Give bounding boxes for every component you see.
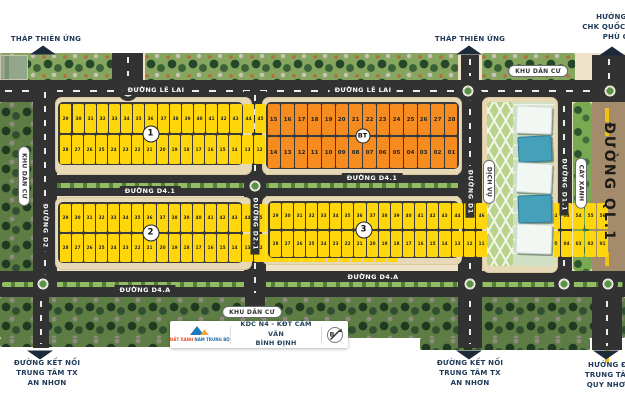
road-label-d11: ĐƯỜNG D1.1 <box>560 155 569 216</box>
compass-north-letter: B <box>330 330 335 338</box>
lot-2-24[interactable]: 24 <box>108 234 119 262</box>
lot-2-20[interactable]: 20 <box>157 234 168 262</box>
road-label-d21: ĐƯỜNG D2.1 <box>251 194 260 255</box>
lot-2-37[interactable]: 37 <box>157 204 168 232</box>
lot-3-13[interactable]: 13 <box>452 231 463 257</box>
lot-BT-20[interactable]: 20 <box>336 104 349 135</box>
lot-BT-02[interactable]: 02 <box>431 137 444 168</box>
project-title-line1: KDC N4 - KĐT CẨM VĂN <box>235 320 317 340</box>
road-centerline <box>40 301 42 344</box>
lot-3-22[interactable]: 22 <box>342 231 353 257</box>
road-label-d2: ĐƯỜNG D2 <box>41 200 50 252</box>
lot-3-26[interactable]: 26 <box>294 231 305 257</box>
lot-1-38[interactable]: 38 <box>170 104 181 133</box>
lot-1-45[interactable]: 45 <box>255 104 266 133</box>
roundabout <box>33 274 53 294</box>
master-plan-map: 2930313233343536373839404142434445464748… <box>0 0 625 420</box>
lot-1-30[interactable]: 30 <box>73 104 84 133</box>
building <box>515 162 553 194</box>
lot-3-34[interactable]: 34 <box>330 203 341 229</box>
trees-south-right-patch <box>420 338 590 350</box>
lot-1-32[interactable]: 32 <box>97 104 108 133</box>
block-badge: BT <box>355 128 370 143</box>
trees-north-2 <box>145 53 458 81</box>
block-badge: 3 <box>355 221 372 238</box>
lot-3-18[interactable]: 18 <box>391 231 402 257</box>
lot-2-35[interactable]: 35 <box>132 204 143 232</box>
area-pill-khu-dan-cu-south: KHU DÂN CƯ <box>222 306 282 318</box>
lot-2-30[interactable]: 30 <box>72 204 83 232</box>
lot-BT-14[interactable]: 14 <box>268 137 281 168</box>
roundabout <box>600 81 620 101</box>
lot-3-14[interactable]: 14 <box>439 231 450 257</box>
lot-BT-10[interactable]: 10 <box>322 137 335 168</box>
direction-line: HƯỚNG ĐI <box>552 12 625 22</box>
lot-1-41[interactable]: 41 <box>206 104 217 133</box>
road-label-le-lai-east: ĐƯỜNG LÊ LAI <box>330 85 397 95</box>
block-3: 2930313233343536373839404142434445464748… <box>268 201 459 258</box>
lot-BT-05[interactable]: 05 <box>390 137 403 168</box>
lot-BT-15[interactable]: 15 <box>268 104 281 135</box>
road-label-d4a-west: ĐƯỜNG D4.A <box>114 285 175 295</box>
divider <box>321 326 322 344</box>
lot-1-17[interactable]: 17 <box>193 135 204 164</box>
lot-3-39[interactable]: 39 <box>391 203 402 229</box>
lot-3-33[interactable]: 33 <box>318 203 329 229</box>
lot-1-43[interactable]: 43 <box>230 104 241 133</box>
lot-1-26[interactable]: 26 <box>84 135 95 164</box>
lot-1-25[interactable]: 25 <box>96 135 107 164</box>
lot-3-44[interactable]: 44 <box>452 203 463 229</box>
lot-3-55[interactable]: 55 <box>585 203 596 229</box>
block-bt: 1516171819202122232425262728 14131211100… <box>266 102 459 169</box>
lot-3-35[interactable]: 35 <box>342 203 353 229</box>
block-2: 2930313233343536373839404142434445464748… <box>58 202 243 263</box>
lot-2-14[interactable]: 14 <box>229 234 240 262</box>
lot-1-23[interactable]: 23 <box>120 135 131 164</box>
developer-logo-text: ĐẤT XANH NAM TRUNG BỘ <box>170 337 230 342</box>
lot-3-38[interactable]: 38 <box>379 203 390 229</box>
direction-line: ĐƯỜNG KẾT NỐI <box>437 358 503 368</box>
logo-text-2: NAM TRUNG BỘ <box>195 337 230 342</box>
area-pill-cay-xanh: CÂY XANH <box>575 158 587 209</box>
lot-3-25[interactable]: 25 <box>306 231 317 257</box>
road-d4a <box>0 271 625 297</box>
roundabout <box>554 274 574 294</box>
block-badge: 1 <box>142 125 159 142</box>
lot-3-31[interactable]: 31 <box>294 203 305 229</box>
lot-BT-19[interactable]: 19 <box>322 104 335 135</box>
building <box>518 194 553 223</box>
lot-3-30[interactable]: 30 <box>282 203 293 229</box>
direction-an-nhon-west: ĐƯỜNG KẾT NỐI TRUNG TÂM TX AN NHƠN <box>14 358 80 388</box>
road-d1-stub-north <box>461 55 479 80</box>
direction-quy-nhon: HƯỚNG ĐI TRUNG TÂM QUY NHƠN <box>566 360 625 390</box>
block-1: 2930313233343536373839404142434445464748… <box>58 102 243 165</box>
road-centerline <box>5 90 620 92</box>
lot-1-29[interactable]: 29 <box>60 104 71 133</box>
lot-BT-26[interactable]: 26 <box>418 104 431 135</box>
lot-2-22[interactable]: 22 <box>132 234 143 262</box>
project-title-line2: BÌNH ĐỊNH <box>235 339 317 349</box>
road-label-d4a-east: ĐƯỜNG D4.A <box>342 272 403 282</box>
lot-2-41[interactable]: 41 <box>205 204 216 232</box>
lot-1-39[interactable]: 39 <box>182 104 193 133</box>
road-centerline <box>469 59 471 76</box>
lot-3-17[interactable]: 17 <box>403 231 414 257</box>
divider <box>230 326 231 344</box>
lot-3-04[interactable]: 04 <box>561 231 572 257</box>
lot-BT-11[interactable]: 11 <box>308 137 321 168</box>
lot-1-33[interactable]: 33 <box>109 104 120 133</box>
lot-1-37[interactable]: 37 <box>158 104 169 133</box>
lot-1-44[interactable]: 44 <box>243 104 254 133</box>
lot-3-28[interactable]: 28 <box>270 231 281 257</box>
road-median <box>2 282 623 287</box>
lot-2-27[interactable]: 27 <box>72 234 83 262</box>
lot-BT-28[interactable]: 28 <box>445 104 458 135</box>
lot-BT-09[interactable]: 09 <box>336 137 349 168</box>
lot-2-32[interactable]: 32 <box>96 204 107 232</box>
lot-BT-01[interactable]: 01 <box>445 137 458 168</box>
lot-3-12[interactable]: 12 <box>464 231 475 257</box>
lot-BT-16[interactable]: 16 <box>281 104 294 135</box>
direction-line: CHK QUỐC TẾ <box>552 22 625 32</box>
direction-line: HƯỚNG ĐI <box>566 360 625 370</box>
lot-3-43[interactable]: 43 <box>439 203 450 229</box>
road-d2 <box>33 88 57 297</box>
lot-3-29[interactable]: 29 <box>270 203 281 229</box>
roundabout <box>598 274 618 294</box>
lot-1-34[interactable]: 34 <box>121 104 132 133</box>
lot-1-14[interactable]: 14 <box>229 135 240 164</box>
area-pill-khu-dan-cu-north: KHU DÂN CƯ <box>508 65 568 77</box>
lot-2-19[interactable]: 19 <box>169 234 180 262</box>
road-centerline <box>44 92 46 293</box>
direction-airport: HƯỚNG ĐI CHK QUỐC TẾ PHÙ CÁT <box>552 12 625 42</box>
lot-1-22[interactable]: 22 <box>132 135 143 164</box>
lot-BT-13[interactable]: 13 <box>281 137 294 168</box>
lot-2-33[interactable]: 33 <box>108 204 119 232</box>
lot-2-39[interactable]: 39 <box>181 204 192 232</box>
lot-2-28[interactable]: 28 <box>60 234 71 262</box>
lot-1-31[interactable]: 31 <box>85 104 96 133</box>
road-centerline <box>469 301 471 344</box>
lot-1-15[interactable]: 15 <box>217 135 228 164</box>
direction-line: ĐƯỜNG KẾT NỐI <box>14 358 80 368</box>
lot-2-25[interactable]: 25 <box>96 234 107 262</box>
lot-BT-18[interactable]: 18 <box>308 104 321 135</box>
roundabout <box>458 81 478 101</box>
road-label-ql1: ĐƯỜNG QL.1 <box>601 122 617 242</box>
lot-3-46[interactable]: 46 <box>476 203 487 229</box>
direction-an-nhon-east: ĐƯỜNG KẾT NỐI TRUNG TÂM TX AN NHƠN <box>437 358 503 388</box>
road-label-d41-west: ĐƯỜNG D4.1 <box>120 186 181 196</box>
direction-thap-thien-ung-mid: THÁP THIÊN ỨNG <box>435 34 505 44</box>
lot-1-28[interactable]: 28 <box>60 135 71 164</box>
lot-BT-25[interactable]: 25 <box>404 104 417 135</box>
road-label-le-lai-west: ĐƯỜNG LÊ LAI <box>123 85 190 95</box>
lot-1-13[interactable]: 13 <box>242 135 253 164</box>
lot-BT-24[interactable]: 24 <box>390 104 403 135</box>
lot-2-15[interactable]: 15 <box>217 234 228 262</box>
lot-3-03[interactable]: 03 <box>573 231 584 257</box>
lot-1-20[interactable]: 20 <box>157 135 168 164</box>
lot-BT-12[interactable]: 12 <box>295 137 308 168</box>
building <box>516 105 553 134</box>
developer-logo: ĐẤT XANH NAM TRUNG BỘ <box>174 326 226 344</box>
road-ql1-south <box>592 297 622 350</box>
direction-thap-thien-ung-west: THÁP THIÊN ỨNG <box>11 34 81 44</box>
road-stub-north-west <box>112 53 143 80</box>
lot-1-18[interactable]: 18 <box>181 135 192 164</box>
road-centerline <box>606 301 608 346</box>
area-pill-khu-dan-cu-west: KHU DÂN CƯ <box>18 146 30 206</box>
direction-line: TRUNG TÂM TX <box>14 368 80 378</box>
lot-1-19[interactable]: 19 <box>169 135 180 164</box>
arrow-up-icon <box>30 46 56 55</box>
lot-BT-04[interactable]: 04 <box>404 137 417 168</box>
arrow-up-icon <box>599 47 625 56</box>
lot-3-11[interactable]: 11 <box>476 231 487 257</box>
road-d1-south <box>458 297 482 348</box>
lot-1-40[interactable]: 40 <box>194 104 205 133</box>
lot-3-42[interactable]: 42 <box>427 203 438 229</box>
lot-3-32[interactable]: 32 <box>306 203 317 229</box>
direction-line: AN NHƠN <box>437 378 503 388</box>
arrow-up-icon <box>456 46 482 55</box>
lot-3-23[interactable]: 23 <box>330 231 341 257</box>
lot-2-26[interactable]: 26 <box>84 234 95 262</box>
lot-3-15[interactable]: 15 <box>427 231 438 257</box>
roundabout <box>460 274 480 294</box>
lot-2-31[interactable]: 31 <box>84 204 95 232</box>
lot-BT-27[interactable]: 27 <box>431 104 444 135</box>
building <box>515 223 552 254</box>
area-pill-dich-vu: DỊCH VỤ <box>483 160 495 204</box>
lot-1-12[interactable]: 12 <box>254 135 265 164</box>
lot-2-43[interactable]: 43 <box>229 204 240 232</box>
lot-1-27[interactable]: 27 <box>72 135 83 164</box>
road-d2-south <box>33 297 49 348</box>
lot-2-34[interactable]: 34 <box>120 204 131 232</box>
lot-2-23[interactable]: 23 <box>120 234 131 262</box>
building <box>517 135 552 163</box>
road-centerline <box>127 57 129 76</box>
logo-mountain-icon <box>190 326 210 335</box>
lot-2-16[interactable]: 16 <box>205 234 216 262</box>
direction-line: PHÙ CÁT <box>552 32 625 42</box>
lot-1-42[interactable]: 42 <box>218 104 229 133</box>
lot-2-18[interactable]: 18 <box>181 234 192 262</box>
direction-line: AN NHƠN <box>14 378 80 388</box>
project-info-card: ĐẤT XANH NAM TRUNG BỘ KDC N4 - KĐT CẨM V… <box>170 321 348 348</box>
lot-2-42[interactable]: 42 <box>217 204 228 232</box>
lot-BT-23[interactable]: 23 <box>377 104 390 135</box>
lot-BT-06[interactable]: 06 <box>377 137 390 168</box>
lot-BT-17[interactable]: 17 <box>295 104 308 135</box>
lot-3-40[interactable]: 40 <box>403 203 414 229</box>
lot-3-27[interactable]: 27 <box>282 231 293 257</box>
direction-line: TRUNG TÂM TX <box>437 368 503 378</box>
direction-line: TRUNG TÂM <box>566 370 625 380</box>
overpass <box>0 55 28 80</box>
lot-BT-03[interactable]: 03 <box>418 137 431 168</box>
road-label-d1: ĐƯỜNG D1 <box>466 166 475 218</box>
lot-3-02[interactable]: 02 <box>585 231 596 257</box>
lot-1-24[interactable]: 24 <box>108 135 119 164</box>
lot-3-16[interactable]: 16 <box>415 231 426 257</box>
lot-2-40[interactable]: 40 <box>193 204 204 232</box>
arrow-down-icon <box>593 351 619 360</box>
lot-2-29[interactable]: 29 <box>60 204 71 232</box>
project-title: KDC N4 - KĐT CẨM VĂN BÌNH ĐỊNH <box>235 320 317 349</box>
lot-3-41[interactable]: 41 <box>415 203 426 229</box>
road-label-d41-east: ĐƯỜNG D4.1 <box>342 173 403 183</box>
lot-1-16[interactable]: 16 <box>205 135 216 164</box>
compass-icon: B <box>326 326 344 344</box>
lot-3-19[interactable]: 19 <box>379 231 390 257</box>
lot-2-38[interactable]: 38 <box>169 204 180 232</box>
lot-2-17[interactable]: 17 <box>193 234 204 262</box>
direction-line: QUY NHƠN <box>566 380 625 390</box>
block-badge: 2 <box>142 224 159 241</box>
logo-text-1: ĐẤT XANH <box>170 337 193 342</box>
lot-3-24[interactable]: 24 <box>318 231 329 257</box>
